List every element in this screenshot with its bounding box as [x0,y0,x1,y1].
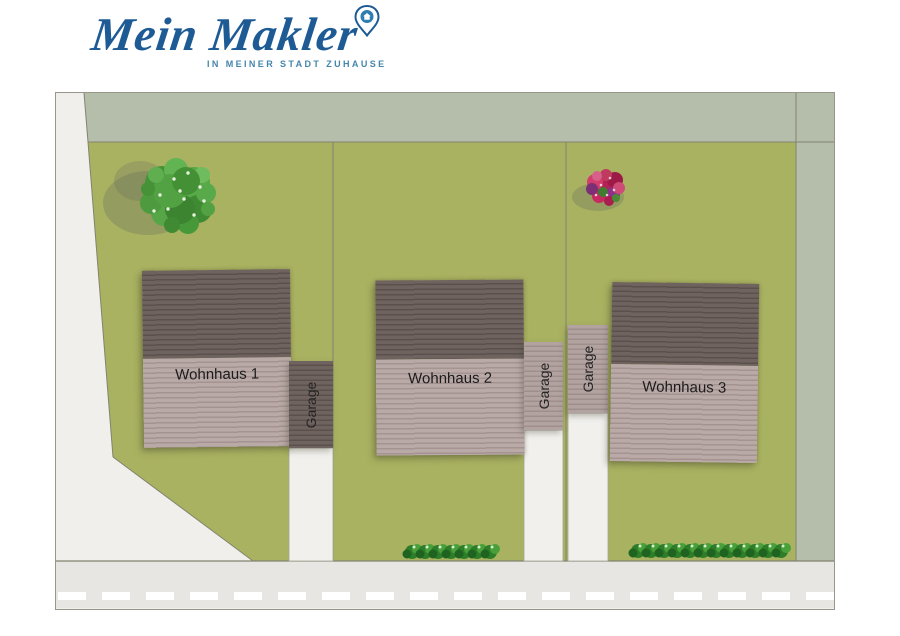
house3-roof-dark [611,282,759,366]
house1-label: Wohnhaus 1 [143,365,291,384]
house-wohnhaus-3: Wohnhaus 3 [610,282,759,463]
house3-label: Wohnhaus 3 [611,378,758,397]
house1-roof-dark [142,269,291,359]
site-plan: Wohnhaus 1 Garage Wohnhaus 2 Garage Gara… [55,92,835,610]
brand-logo: Mein Makler IN MEINER STADT ZUHAUSE [92,6,412,86]
garage-2: Garage [524,342,563,430]
garage2-label: Garage [536,363,552,410]
house2-label: Wohnhaus 2 [376,369,524,387]
garage-1: Garage [289,361,333,448]
house-wohnhaus-2: Wohnhaus 2 [375,279,524,455]
garage1-label: Garage [303,381,319,428]
garage-3: Garage [568,325,608,413]
brand-tagline: IN MEINER STADT ZUHAUSE [207,59,387,69]
garage3-label: Garage [580,346,596,393]
page: Mein Makler IN MEINER STADT ZUHAUSE Wohn… [0,0,900,636]
location-pin-icon [353,4,381,38]
brand-name: Mein Makler [88,6,362,64]
house2-roof-dark [375,279,524,359]
house-wohnhaus-1: Wohnhaus 1 [142,269,292,448]
